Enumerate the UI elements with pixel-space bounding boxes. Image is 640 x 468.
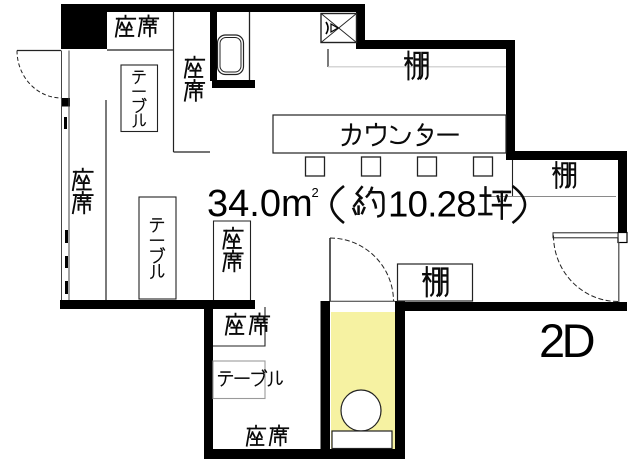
svg-text:2: 2: [312, 185, 319, 200]
svg-text:10.28: 10.28: [388, 184, 476, 225]
svg-text:2D: 2D: [539, 314, 594, 367]
svg-text:34.0m: 34.0m: [207, 183, 313, 225]
